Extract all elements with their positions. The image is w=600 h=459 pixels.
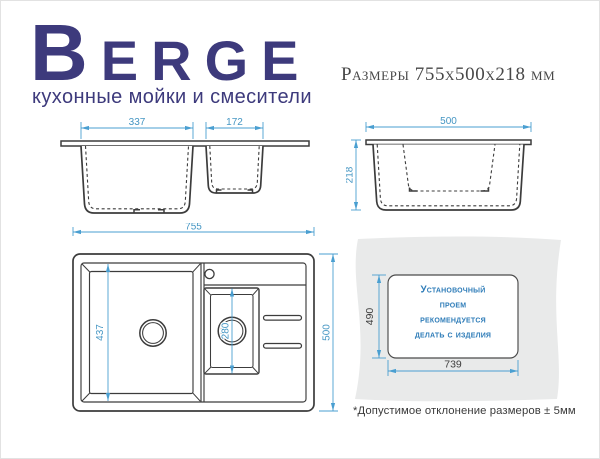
- cutout-diagram: Установочный проем рекомендуется делать …: [344, 229, 589, 414]
- front-sink-outline: [61, 141, 309, 213]
- brand-logo: Berge: [30, 13, 311, 93]
- cutout-note-line: проем: [440, 300, 467, 311]
- front-view-drawing: 337 172: [51, 113, 321, 228]
- brand-tagline: кухонные мойки и смесители: [32, 86, 312, 109]
- drainboard-groove: [264, 316, 302, 321]
- cutout-note-line: делать с изделия: [415, 330, 491, 341]
- spec-sheet: Berge кухонные мойки и смесители Размеры…: [0, 0, 600, 459]
- top-sink-outline: [73, 254, 314, 411]
- sink-height-value: 218: [346, 166, 356, 183]
- second-bowl-width-value: 172: [226, 117, 243, 128]
- sink-width-value: 500: [440, 116, 457, 127]
- sink-length-value: 755: [185, 223, 202, 233]
- cutout-width-value: 739: [444, 359, 462, 371]
- cutout-height-value: 490: [364, 308, 376, 326]
- overall-dimensions-label: Размеры 755х500х218 мм: [341, 64, 555, 86]
- second-bowl-length-value: 280: [221, 322, 232, 339]
- side-view-drawing: 500 218: [346, 113, 571, 228]
- sink-depth-value: 500: [322, 324, 333, 341]
- side-sink-outline: [366, 140, 531, 210]
- cutout-note-line: Установочный: [421, 285, 486, 296]
- cutout-note-line: рекомендуется: [420, 315, 486, 326]
- top-view-drawing: 755 500 437: [51, 223, 343, 418]
- tolerance-footnote: *Допустимое отклонение размеров ± 5мм: [353, 405, 576, 417]
- main-bowl-length-value: 437: [95, 324, 106, 341]
- main-bowl-width-value: 337: [129, 117, 146, 128]
- drainboard-groove: [264, 344, 302, 349]
